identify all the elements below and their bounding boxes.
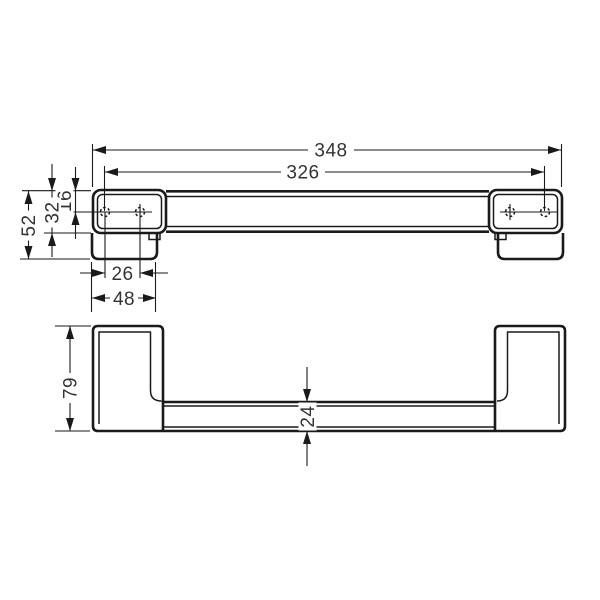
dim-foot-width-label: 48	[110, 289, 138, 310]
left-post-inner-edge	[99, 332, 151, 424]
dim-text-52: 52	[19, 214, 40, 236]
arrowhead-left	[105, 168, 118, 176]
grab-bar-dimension-drawing: 348 326	[0, 0, 600, 600]
left-mounting-plate	[67, 190, 166, 233]
arrowhead-down	[25, 246, 33, 259]
foot-outline	[92, 233, 157, 259]
dim-text-48: 48	[113, 289, 135, 310]
arrowhead-right	[143, 294, 156, 302]
dim-bar-height-label: 24	[298, 403, 319, 431]
right-wall-foot	[495, 233, 563, 259]
arrowhead-right	[92, 269, 105, 277]
dim-hole-spacing-label: 26	[109, 264, 137, 285]
arrowhead-down	[66, 418, 74, 431]
dim-text-326: 326	[286, 163, 319, 184]
front-view: 79 24	[55, 326, 565, 466]
dim-hole-span-label: 326	[281, 162, 325, 184]
right-post-inner-edge	[507, 332, 559, 424]
top-view: 348 326	[19, 140, 563, 312]
arrowhead-up	[25, 191, 33, 204]
bar-rail-top	[166, 191, 489, 231]
dim-text-32: 32	[43, 201, 64, 223]
arrowhead-left	[93, 146, 106, 154]
dim-text-24: 24	[298, 405, 319, 427]
dim-text-26: 26	[111, 264, 133, 285]
dim-hole-span: 326	[105, 162, 545, 211]
foot-outline	[498, 233, 563, 259]
dim-plate-depth: 32	[43, 164, 64, 257]
dim-wall-offset: 52	[19, 191, 40, 259]
dim-text-348: 348	[314, 141, 347, 162]
arrowhead-right	[548, 146, 561, 154]
dim-bar-height: 24	[298, 367, 319, 466]
left-wall-foot	[92, 233, 160, 259]
left-post-fillet	[151, 332, 162, 401]
arrowhead-left	[140, 269, 153, 277]
arrowhead-up	[48, 233, 56, 246]
dim-overall-height-label: 79	[61, 373, 82, 403]
arrowhead-up	[66, 326, 74, 339]
right-mounting-plate	[489, 190, 562, 233]
arrowhead-left	[92, 294, 105, 302]
arrowhead-down	[48, 178, 56, 191]
arrowhead-right	[531, 168, 544, 176]
dim-overall-length-label: 348	[309, 140, 353, 162]
dim-wall-offset-label: 52	[19, 211, 40, 241]
dim-overall-length: 348	[93, 140, 562, 187]
bar-inner-contours	[99, 332, 559, 427]
dim-text-79: 79	[61, 377, 82, 399]
arrowhead-up	[303, 431, 311, 444]
dim-plate-depth-label: 32	[43, 198, 64, 228]
dim-overall-height: 79	[55, 326, 91, 431]
technical-drawing-page: 348 326	[0, 0, 600, 600]
right-post-fillet	[497, 332, 508, 401]
arrowhead-down	[303, 389, 311, 402]
